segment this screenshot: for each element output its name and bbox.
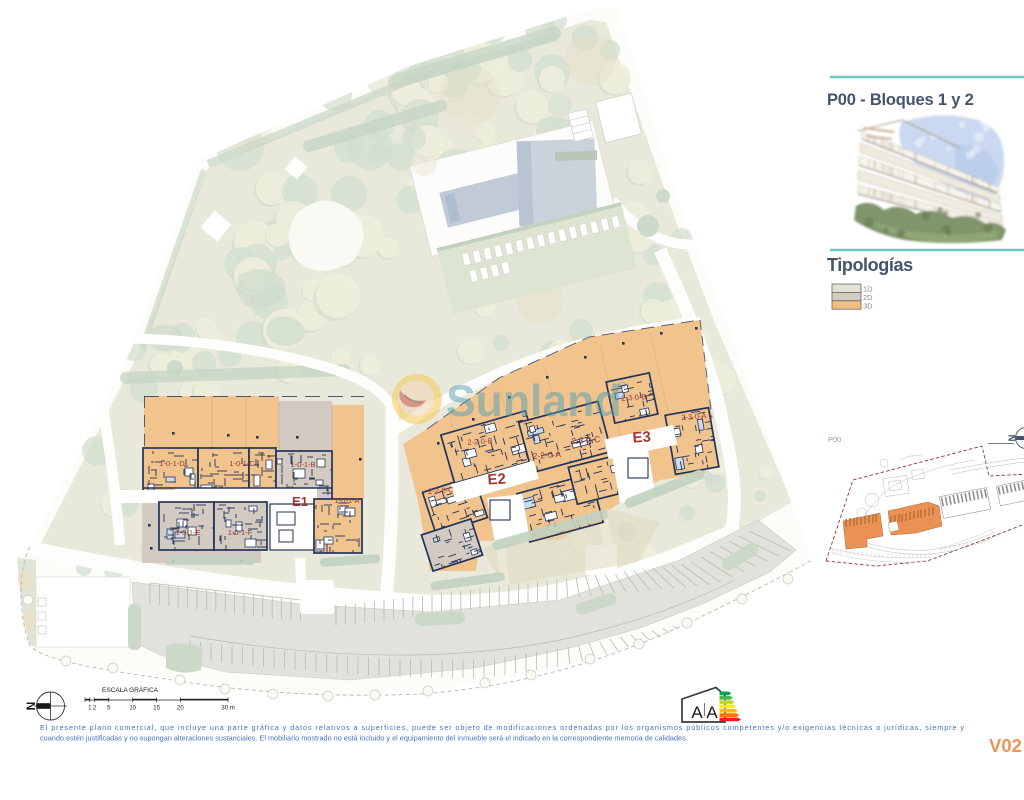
svg-text:V02: V02 [989,735,1022,756]
svg-text:30 m: 30 m [221,706,234,712]
svg-text:N: N [1007,434,1018,441]
svg-text:2-3-0-C: 2-3-0-C [571,434,600,446]
svg-text:N: N [24,702,38,711]
svg-text:1-0-1-C: 1-0-1-C [229,459,255,468]
svg-text:A: A [706,703,718,722]
svg-text:ESCALA GRÁFICA: ESCALA GRÁFICA [102,685,159,694]
svg-text:1-0-1-A: 1-0-1-A [334,496,359,505]
svg-text:2-3-0-A: 2-3-0-A [681,411,707,422]
svg-text:2: 2 [93,706,97,712]
svg-text:2-3-0-B: 2-3-0-B [621,392,647,403]
svg-text:A: A [691,703,703,722]
svg-text:El presente plano comercial, q: El presente plano comercial, que incluye… [40,723,964,732]
svg-text:P00 - Bloques 1 y 2: P00 - Bloques 1 y 2 [827,91,974,109]
svg-text:Sunland: Sunland [446,377,622,426]
svg-text:1-0-1-E: 1-0-1-E [175,528,200,537]
svg-text:2-2-0-B: 2-2-0-B [467,436,493,447]
svg-text:5: 5 [107,706,111,712]
svg-text:2-2-0-A: 2-2-0-A [532,449,561,461]
svg-text:20: 20 [177,706,184,712]
svg-text:1-0-1-D: 1-0-1-D [159,459,185,468]
svg-text:cuando estén justificadas y no: cuando estén justificadas y no supongan … [40,734,688,743]
svg-text:E2: E2 [487,470,507,488]
svg-text:P00: P00 [828,435,841,444]
svg-text:3D: 3D [863,301,873,310]
svg-text:E1: E1 [292,494,308,509]
svg-text:10: 10 [129,706,136,712]
svg-text:1-0-1-B: 1-0-1-B [290,460,315,469]
svg-text:1-0-1-F: 1-0-1-F [228,528,253,537]
svg-text:E3: E3 [632,428,652,446]
svg-text:1: 1 [88,706,92,712]
svg-text:15: 15 [153,706,160,712]
svg-text:2-2-0-C: 2-2-0-C [428,485,455,496]
svg-text:Tipologías: Tipologías [827,255,913,275]
